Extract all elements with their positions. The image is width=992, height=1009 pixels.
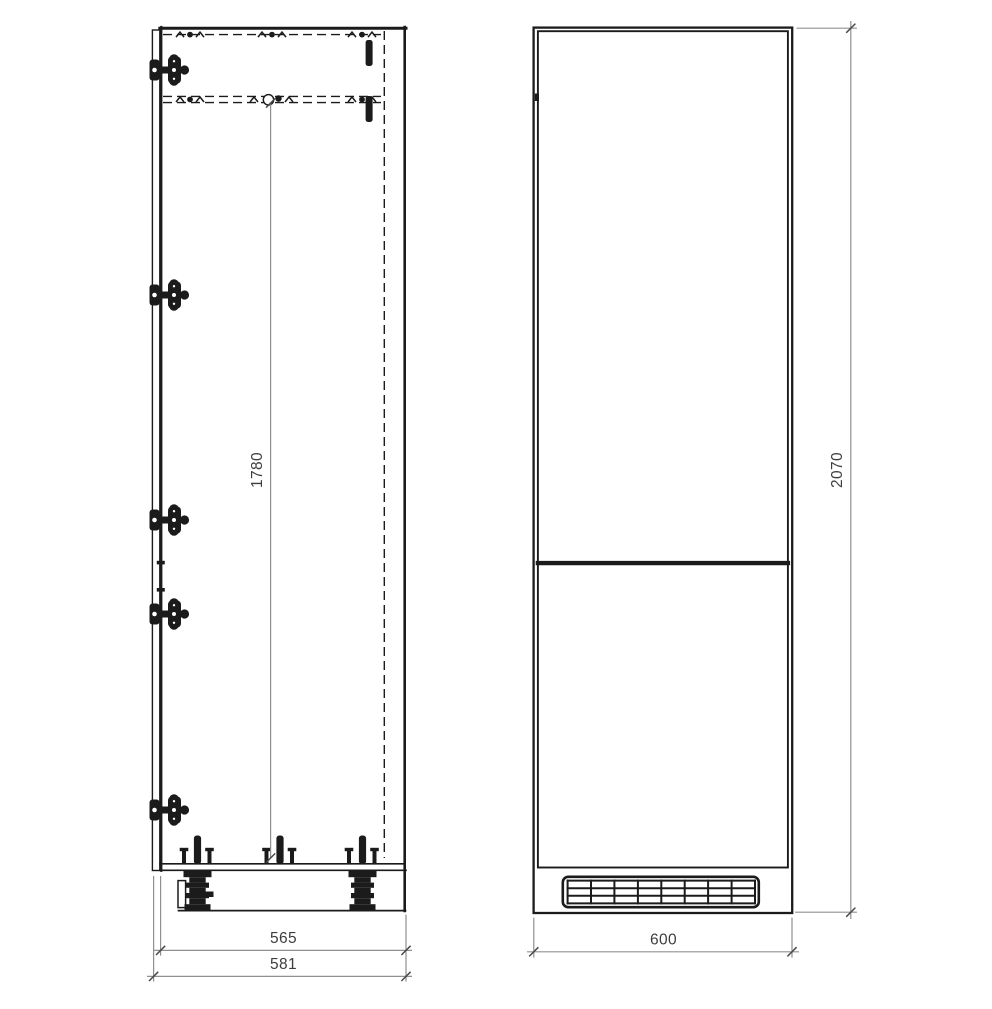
connector-bolt-icon [180, 836, 214, 865]
leveling-feet [178, 871, 377, 911]
hinge-edge-mark [535, 94, 539, 102]
side-door-panel [152, 30, 159, 871]
door-gap-mark [157, 588, 165, 592]
vent-grille [563, 877, 759, 907]
connector-bolt-icon [262, 836, 296, 865]
dim-label-width: 600 [650, 932, 677, 949]
dimension-height: 2070 [795, 21, 857, 919]
dowel-dot-icon [275, 95, 281, 101]
dowel-caret-icon [285, 97, 293, 102]
dim-label-depth-carcass: 565 [270, 930, 297, 947]
leveling-foot-icon [184, 871, 214, 911]
cam-lock-icon [263, 95, 273, 105]
dowel-fitting-icon [176, 97, 204, 103]
side-view: 1780 565 581 [147, 27, 412, 982]
plinth-clip-icon [178, 881, 186, 908]
front-carcass-outline [534, 28, 793, 913]
bottom-bolt-row [180, 836, 379, 865]
leveling-foot-icon [349, 871, 377, 911]
front-view: 600 2070 [527, 21, 857, 958]
dowel-caret-icon [250, 97, 258, 102]
connector-bolt-icon [345, 836, 379, 865]
side-carcass-outline [160, 27, 406, 911]
back-panel-bolt-icon [366, 96, 373, 122]
dimension-depths: 565 581 [147, 876, 412, 982]
dim-label-depth-total: 581 [270, 956, 297, 973]
dim-label-height: 2070 [829, 452, 846, 488]
dim-label-niche-height: 1780 [249, 452, 266, 488]
side-hidden-lines [163, 31, 384, 858]
drawing-canvas: 1780 565 581 [0, 0, 992, 1009]
back-panel-bolt-icon [366, 40, 373, 66]
door-gap-mark [157, 561, 165, 565]
cabinet-technical-drawing: 1780 565 581 [0, 0, 992, 1009]
dimension-niche-height: 1780 [249, 98, 275, 862]
panel-fitting-icons [176, 32, 376, 122]
dimension-width: 600 [527, 918, 799, 958]
